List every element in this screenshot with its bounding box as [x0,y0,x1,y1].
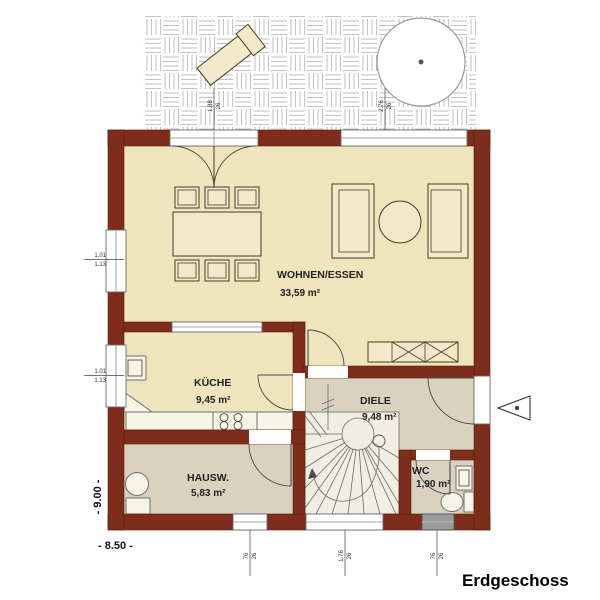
window-utility-bottom [233,514,267,530]
area-label-utility: 5,83 m² [191,488,226,499]
floor-plan-page: 1.01 1.13 1.01 1.13 1.88 26 2.76 26 76 2… [0,0,600,600]
dining-chair [235,260,259,281]
wc-sink [456,466,472,490]
window-wc-bottom [422,514,454,530]
room-label-hall: DIELE [360,395,391,407]
area-label-hall: 9,48 m² [362,412,397,423]
cooktop [213,412,257,430]
dimension-overall-height: - 9.00 - [92,479,104,514]
sideboard [368,342,458,362]
pass-through-kitchen [172,322,262,332]
room-label-kitchen: KÜCHE [194,376,231,389]
dining-chair [175,260,199,281]
dining-table [173,212,261,256]
svg-text:1.01: 1.01 [94,369,106,375]
svg-text:2.76: 2.76 [379,100,385,112]
washing-machine [126,473,149,496]
dining-chair [205,260,229,281]
area-label-wc: 1,90 m² [416,479,451,490]
svg-text:1.76: 1.76 [339,550,345,562]
svg-text:26: 26 [252,552,258,559]
svg-text:1.01: 1.01 [94,253,106,259]
sofa [332,184,374,258]
kitchen-sink-unit [124,356,146,380]
window-kitchen-left [106,345,126,407]
floor-plan-drawing: 1.01 1.13 1.01 1.13 1.88 26 2.76 26 76 2… [0,0,600,600]
area-label-kitchen: 9,45 m² [196,395,231,406]
window-stair-bottom [306,514,383,530]
armchair [428,184,468,258]
svg-text:26: 26 [439,552,445,559]
svg-text:1.88: 1.88 [208,100,214,112]
room-label-utility: HAUSW. [187,472,229,484]
dimension-window-wc-bottom: 76 26 [431,530,445,576]
svg-text:26: 26 [387,102,393,109]
exterior-wall-left [108,130,124,530]
dimension-window-stair-bottom: 1.76 26 [339,530,353,576]
svg-text:76: 76 [431,552,437,559]
svg-text:1.13: 1.13 [94,262,106,268]
dimension-overall-width: - 8.50 - [98,540,133,552]
floor-title: Erdgeschoss [462,571,569,590]
dining-chair [175,187,199,208]
dining-chair [205,187,229,208]
tree [377,18,465,106]
area-label-living: 33,59 m² [280,288,321,299]
coffee-table [379,201,421,243]
exterior-wall-right [474,130,490,530]
svg-text:26: 26 [216,102,222,109]
dryer [126,498,150,514]
svg-text:76: 76 [244,552,250,559]
toilet [441,492,474,512]
dimension-window-utility-bottom: 76 26 [244,530,258,576]
entrance-arrow-icon [498,396,530,420]
window-living-top [341,130,467,146]
svg-text:26: 26 [347,552,353,559]
dining-chair [235,187,259,208]
window-living-left [106,230,126,292]
room-label-living: WOHNEN/ESSEN [277,269,363,281]
room-label-wc: WC [412,465,430,477]
svg-text:1.13: 1.13 [94,378,106,384]
